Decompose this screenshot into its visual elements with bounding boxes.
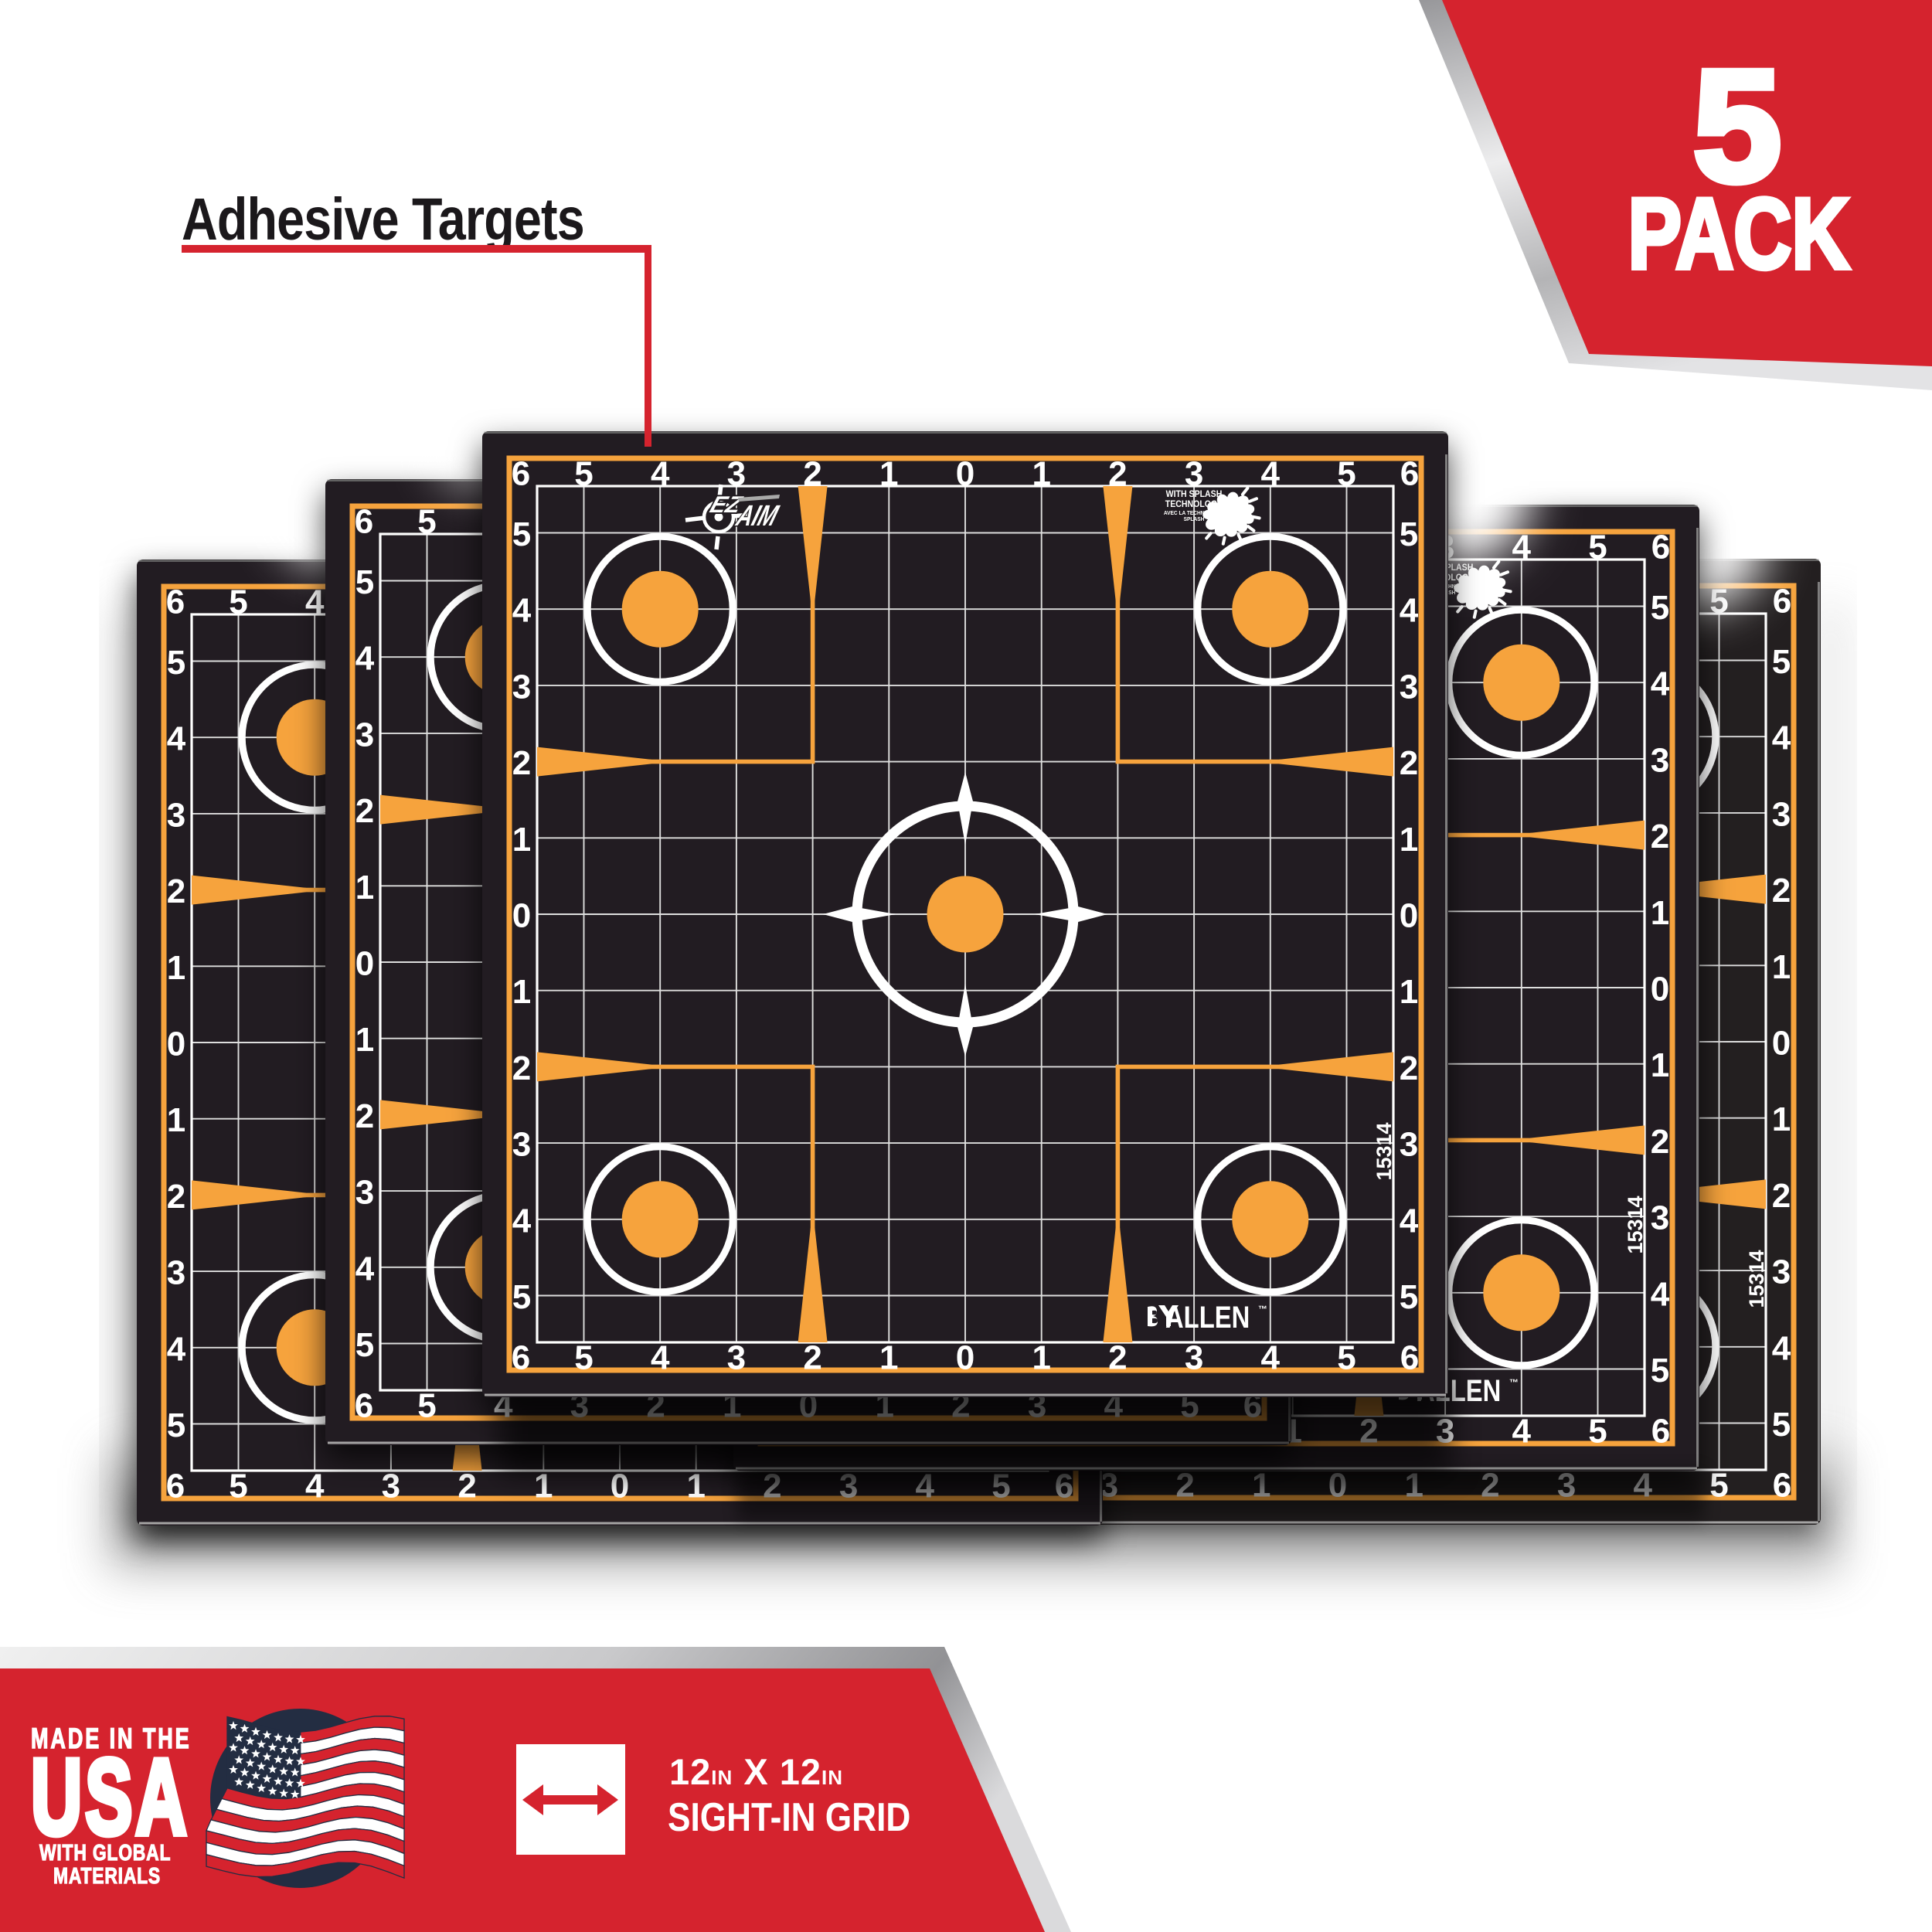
svg-text:MATERIALS: MATERIALS	[53, 1862, 161, 1888]
svg-text:Adhesive Targets: Adhesive Targets	[182, 187, 584, 253]
svg-text:12IN X 12IN: 12IN X 12IN	[669, 1751, 843, 1792]
svg-text:PACK: PACK	[1628, 177, 1850, 290]
svg-text:WITH GLOBAL: WITH GLOBAL	[39, 1839, 171, 1865]
svg-text:SIGHT-IN GRID: SIGHT-IN GRID	[668, 1795, 910, 1840]
svg-text:USA: USA	[31, 1736, 190, 1857]
